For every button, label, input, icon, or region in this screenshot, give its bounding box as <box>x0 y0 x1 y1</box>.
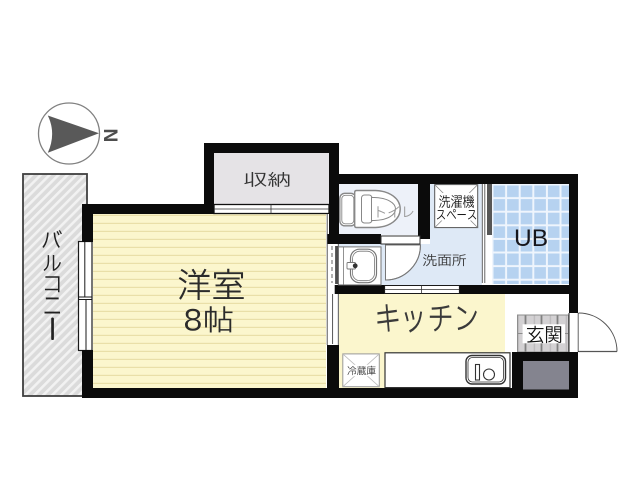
svg-text:N: N <box>99 129 120 143</box>
svg-text:UB: UB <box>514 225 548 252</box>
